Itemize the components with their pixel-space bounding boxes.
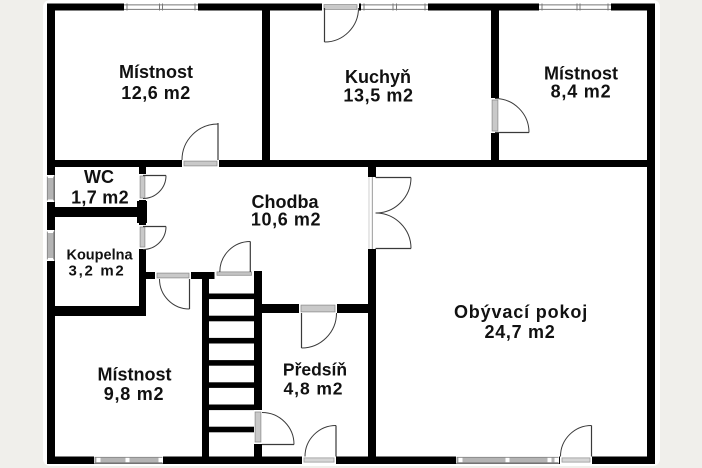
svg-text:10,6 m2: 10,6 m2 <box>251 210 321 230</box>
svg-text:3,2 m2: 3,2 m2 <box>69 263 126 280</box>
svg-text:WC: WC <box>84 167 114 187</box>
svg-text:Místnost: Místnost <box>544 64 618 84</box>
svg-text:Předsíň: Předsíň <box>283 360 347 380</box>
svg-text:4,8 m2: 4,8 m2 <box>284 379 344 399</box>
svg-text:Kuchyň: Kuchyň <box>345 67 411 87</box>
svg-text:1,7 m2: 1,7 m2 <box>71 188 129 208</box>
svg-text:9,8 m2: 9,8 m2 <box>104 384 165 404</box>
svg-text:13,5 m2: 13,5 m2 <box>343 86 413 106</box>
svg-text:8,4 m2: 8,4 m2 <box>551 82 612 102</box>
svg-text:Obývací pokoj: Obývací pokoj <box>454 302 588 322</box>
svg-text:24,7 m2: 24,7 m2 <box>485 322 556 342</box>
svg-text:Koupelna: Koupelna <box>66 248 133 264</box>
svg-text:12,6 m2: 12,6 m2 <box>121 83 191 103</box>
svg-text:Místnost: Místnost <box>98 365 172 385</box>
svg-text:Místnost: Místnost <box>119 62 193 82</box>
